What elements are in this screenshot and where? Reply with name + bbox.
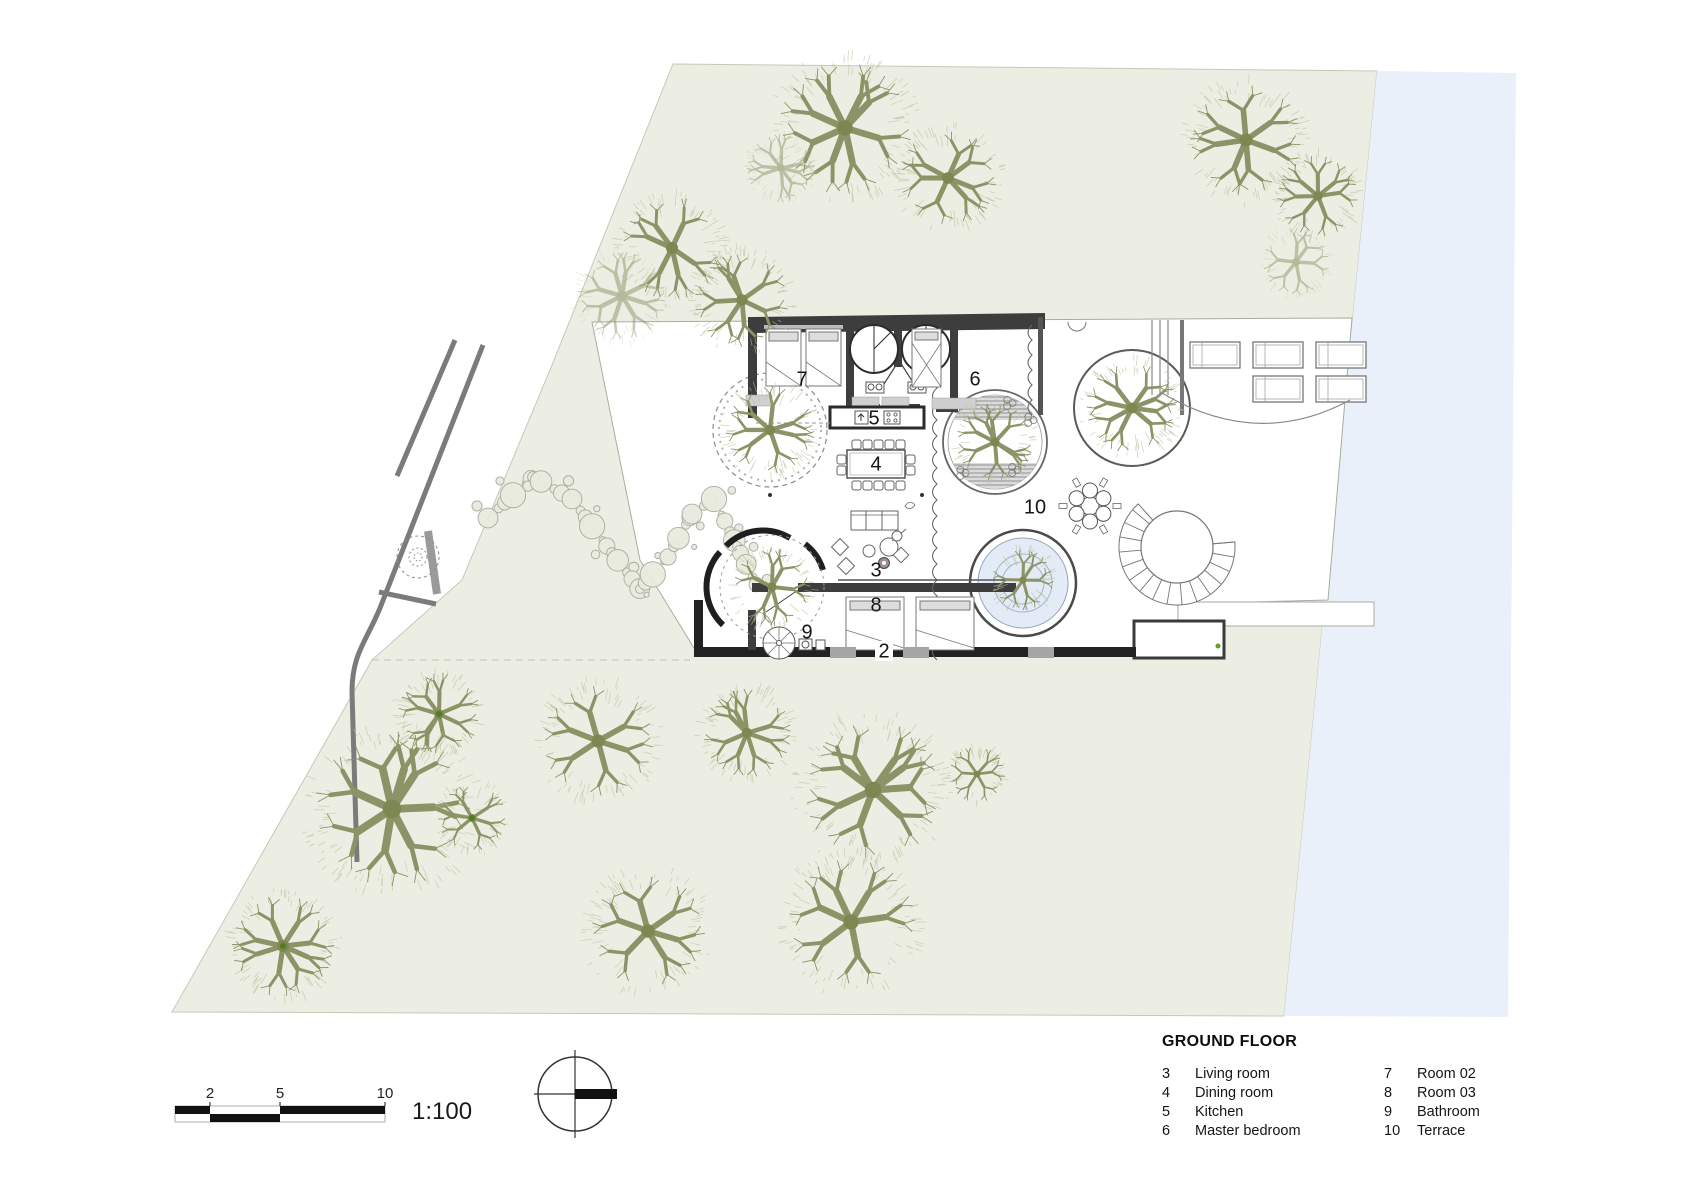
room8-wall	[798, 583, 1016, 592]
scale-ratio: 1:100	[412, 1098, 472, 1126]
legend-title: GROUND FLOOR	[1162, 1033, 1582, 1051]
room-label-5: 5	[868, 408, 879, 431]
room-label-10: 10	[1024, 497, 1046, 520]
scale-tick-2: 2	[206, 1085, 214, 1102]
site-plan-sheet: 7 5 6 4 3 8 10 9 2 2 5 10 1:100 GROUND F…	[0, 0, 1697, 1200]
legend-item: 6Master bedroom	[1162, 1122, 1384, 1141]
legend-item: 7Room 02	[1384, 1065, 1564, 1084]
legend: GROUND FLOOR 3Living room 4Dining room 5…	[1162, 1033, 1582, 1141]
room-label-7: 7	[796, 369, 807, 392]
room-label-4: 4	[870, 454, 881, 477]
compass-pointer	[575, 1089, 617, 1099]
north-indicator	[534, 1050, 617, 1138]
room-label-9: 9	[801, 622, 812, 645]
legend-item: 9Bathroom	[1384, 1103, 1564, 1122]
scale-tick-5: 5	[276, 1085, 284, 1102]
room-label-6: 6	[969, 369, 980, 392]
legend-item: 8Room 03	[1384, 1084, 1564, 1103]
gate-wall	[428, 531, 437, 594]
plan-drawing	[0, 0, 1697, 1200]
scale-tick-10: 10	[377, 1085, 394, 1102]
scale-bar	[175, 1102, 385, 1122]
legend-item: 4Dining room	[1162, 1084, 1384, 1103]
room6-bed	[912, 329, 941, 387]
legend-item: 5Kitchen	[1162, 1103, 1384, 1122]
legend-item: 3Living room	[1162, 1065, 1384, 1084]
room-label-3: 3	[870, 560, 881, 583]
legend-item: 10Terrace	[1384, 1122, 1564, 1141]
stove-icon	[884, 411, 900, 424]
room-label-2: 2	[878, 641, 889, 664]
room-label-8: 8	[870, 595, 881, 618]
planter-box	[1134, 621, 1224, 658]
